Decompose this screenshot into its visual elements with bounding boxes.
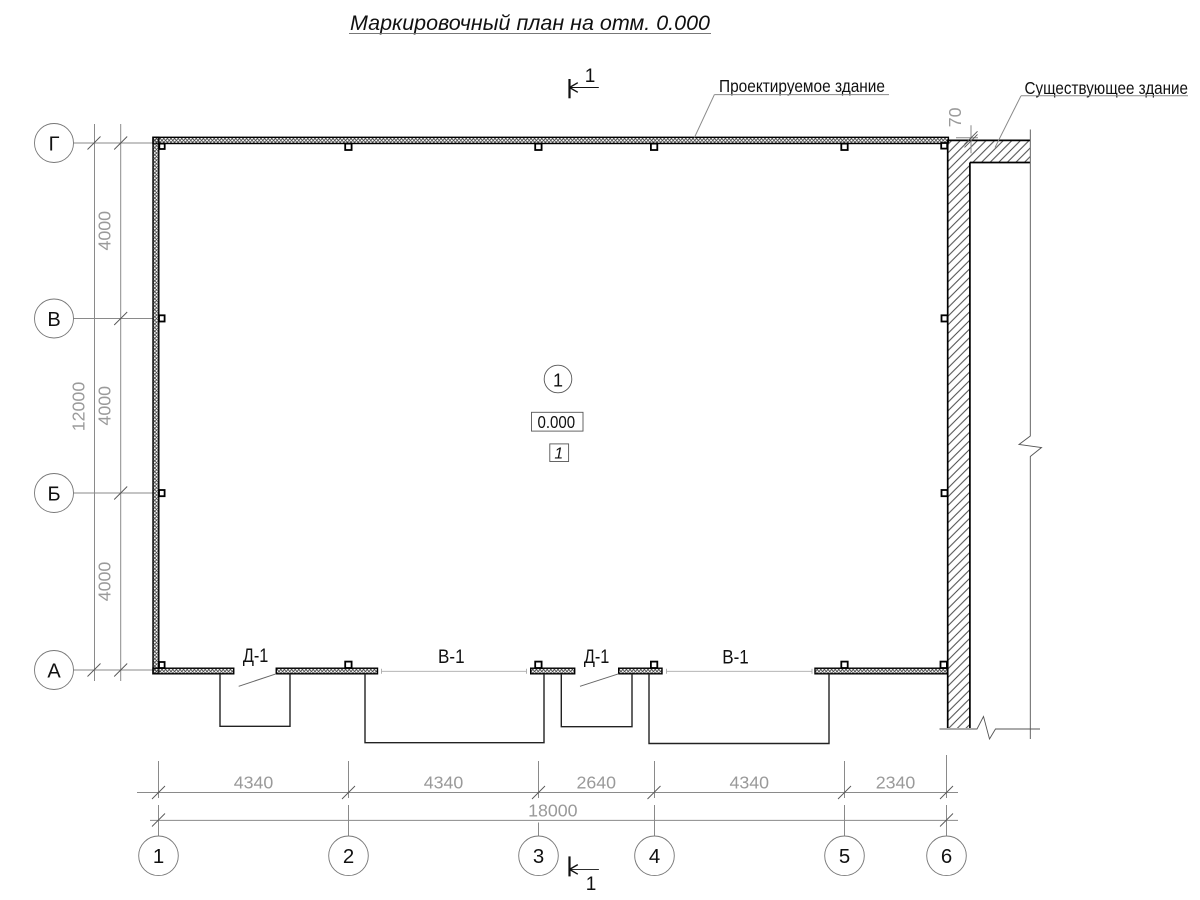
svg-text:Г: Г	[49, 133, 60, 155]
svg-text:70: 70	[945, 107, 965, 127]
svg-text:12000: 12000	[69, 382, 89, 432]
svg-text:1: 1	[554, 445, 563, 462]
svg-text:Существующее здание: Существующее здание	[1025, 78, 1189, 98]
svg-text:1: 1	[153, 846, 164, 868]
svg-text:4340: 4340	[424, 772, 464, 792]
svg-text:1: 1	[585, 66, 596, 87]
svg-text:4340: 4340	[234, 772, 274, 792]
svg-text:1: 1	[586, 874, 597, 895]
svg-text:4000: 4000	[95, 562, 115, 602]
svg-text:Проектируемое здание: Проектируемое здание	[719, 76, 885, 96]
svg-text:Д-1: Д-1	[584, 647, 610, 668]
svg-text:4: 4	[649, 846, 660, 868]
svg-text:1: 1	[553, 370, 563, 390]
svg-text:Д-1: Д-1	[243, 646, 269, 667]
svg-text:4000: 4000	[95, 211, 115, 251]
svg-text:2340: 2340	[876, 772, 916, 792]
svg-text:А: А	[47, 660, 61, 682]
svg-text:4000: 4000	[95, 386, 115, 426]
svg-text:2: 2	[343, 846, 354, 868]
svg-text:3: 3	[533, 846, 544, 868]
svg-text:В-1: В-1	[722, 648, 749, 669]
svg-text:В-1: В-1	[438, 647, 465, 668]
svg-text:Б: Б	[47, 483, 60, 505]
svg-text:4340: 4340	[730, 772, 770, 792]
svg-text:2640: 2640	[577, 772, 617, 792]
svg-text:Маркировочный план на отм. 0.0: Маркировочный план на отм. 0.000	[350, 11, 710, 35]
svg-text:6: 6	[941, 846, 952, 868]
svg-text:5: 5	[839, 846, 850, 868]
svg-text:0.000: 0.000	[538, 412, 576, 432]
svg-text:В: В	[47, 309, 60, 331]
svg-text:18000: 18000	[528, 800, 578, 820]
